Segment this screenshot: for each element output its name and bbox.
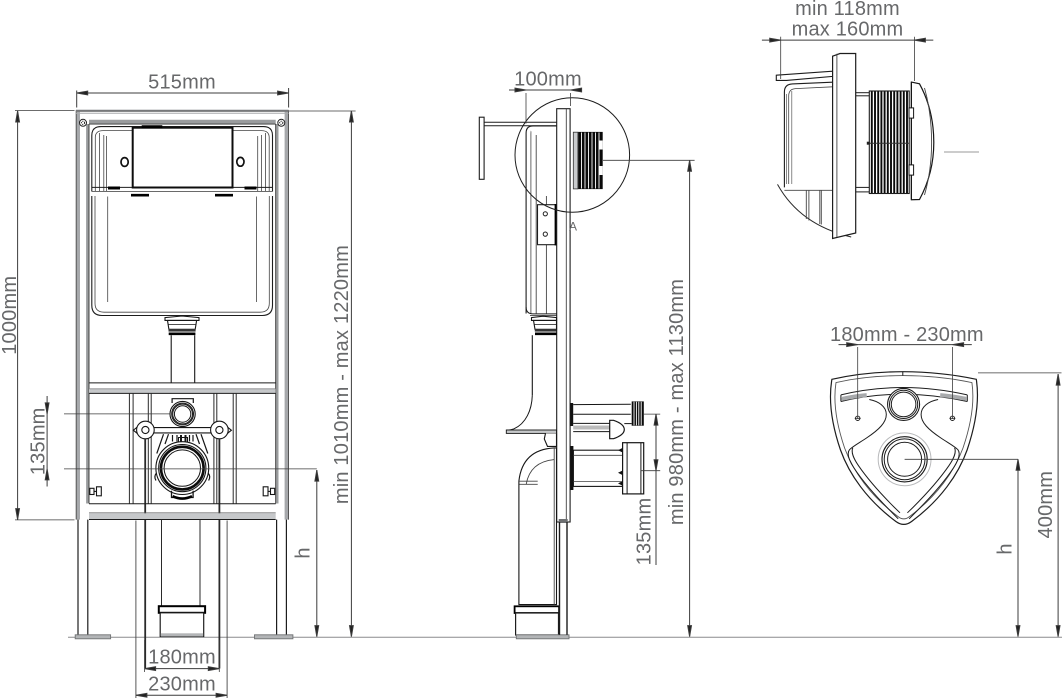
svg-text:min 118mm: min 118mm (795, 0, 900, 20)
svg-text:min 980mm - max 1130mm: min 980mm - max 1130mm (666, 279, 688, 525)
svg-text:180mm - 230mm: 180mm - 230mm (830, 324, 984, 346)
svg-text:A: A (569, 220, 577, 234)
svg-text:1000mm: 1000mm (0, 276, 21, 355)
svg-text:h: h (995, 543, 1017, 554)
svg-text:180mm: 180mm (148, 647, 216, 669)
svg-text:135mm: 135mm (27, 407, 49, 475)
svg-text:515mm: 515mm (148, 72, 216, 94)
svg-text:min 1010mm - max 1220mm: min 1010mm - max 1220mm (331, 245, 353, 504)
svg-text:400mm: 400mm (1035, 471, 1057, 539)
svg-text:h: h (293, 547, 315, 558)
svg-text:100mm: 100mm (514, 69, 582, 91)
svg-text:135mm: 135mm (634, 498, 656, 566)
svg-text:max 160mm: max 160mm (792, 18, 904, 40)
svg-text:230mm: 230mm (148, 674, 216, 696)
